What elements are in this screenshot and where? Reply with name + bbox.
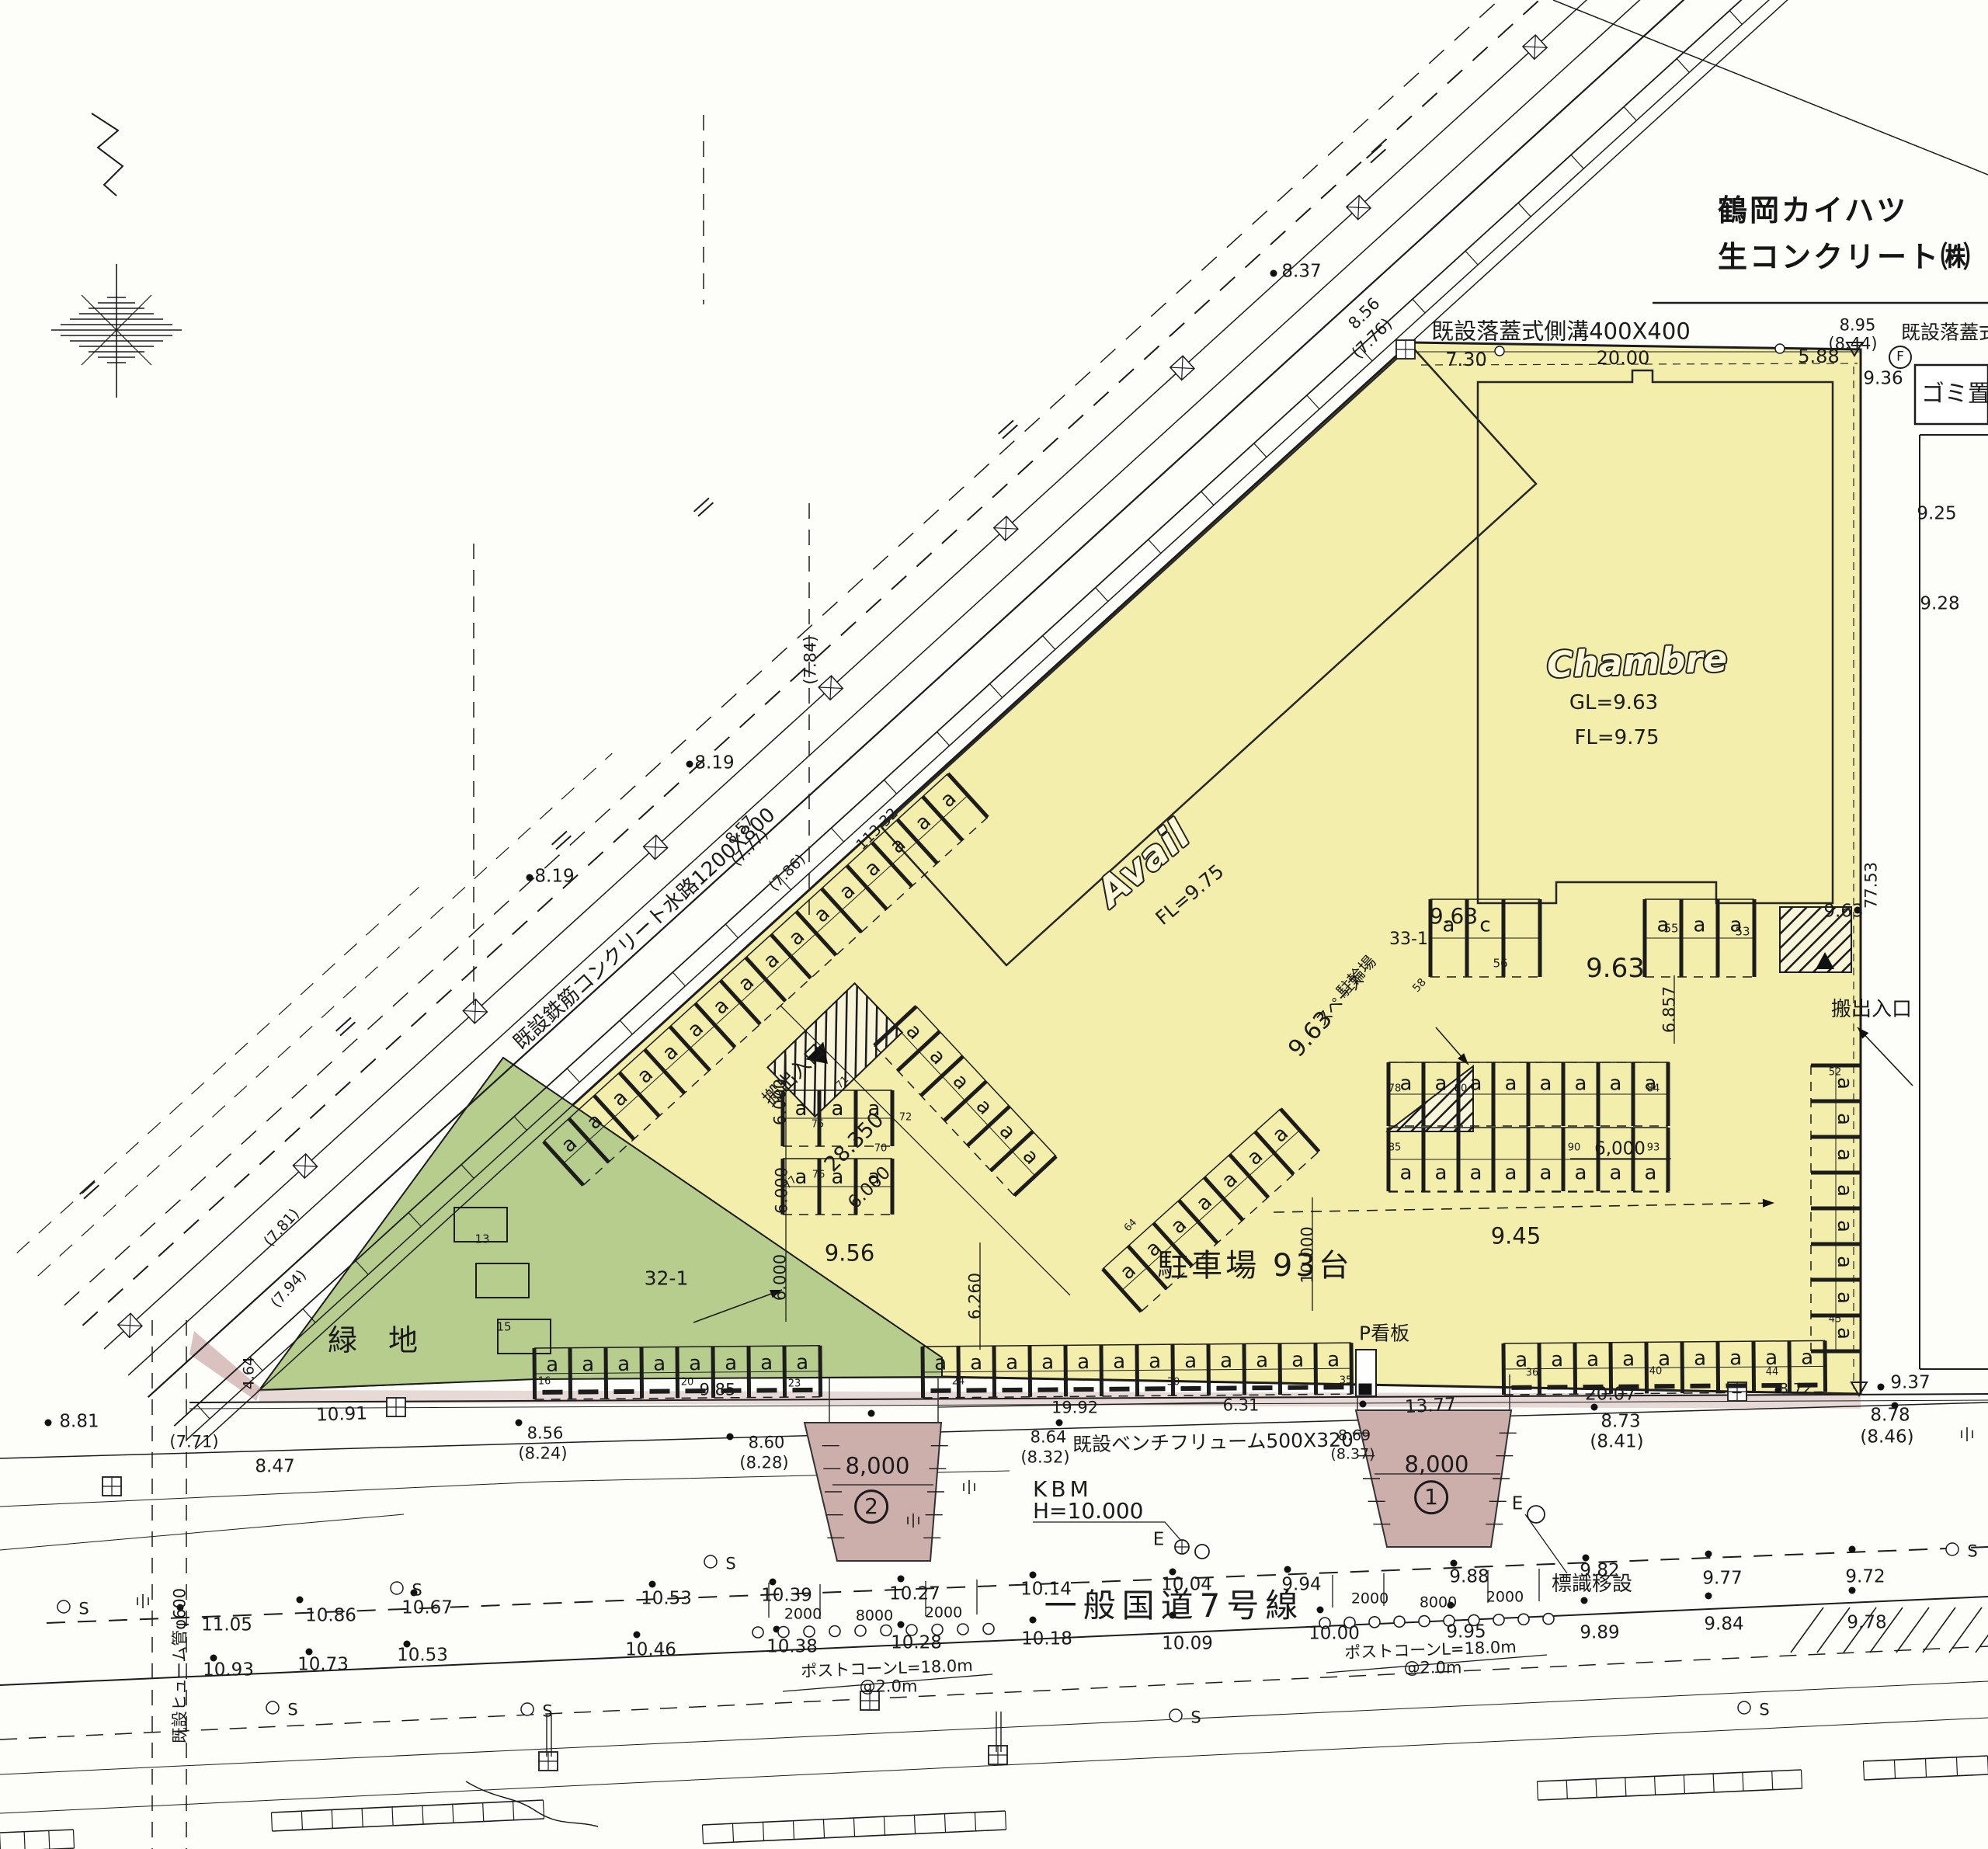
plan-shape: a [970, 1351, 982, 1375]
plan-shape [792, 1388, 812, 1392]
plan-shape [958, 1347, 959, 1398]
s-marker-circle [1170, 1709, 1182, 1722]
post-cone [855, 1625, 866, 1636]
plan-shape: a [1833, 1291, 1856, 1304]
plan-shape: a [1833, 1077, 1856, 1090]
survey-dot [527, 874, 533, 881]
plan-shape: a [1505, 1162, 1517, 1185]
plan-shape: a [582, 1353, 594, 1376]
kbm-point [1175, 1540, 1189, 1554]
plan-shape [823, 1819, 824, 1838]
plan-shape [694, 498, 709, 511]
plan-shape [1030, 1346, 1030, 1397]
plan-shape [1307, 395, 1319, 409]
plan-shape: a [1435, 1072, 1448, 1095]
plan-shape: a [1645, 1162, 1657, 1185]
survey-dot [686, 761, 693, 768]
plan-shape: a [1622, 1347, 1635, 1371]
plan-shape [1825, 1340, 1826, 1392]
plus-box-marker [103, 1477, 121, 1496]
survey-dot [45, 1420, 52, 1427]
e-marker-circle [1195, 1545, 1209, 1559]
tick-triplet [1962, 1427, 1972, 1441]
survey-dot [1705, 1593, 1712, 1600]
plan-shape [641, 1347, 642, 1399]
parking-row: aaaaaaaaa [1503, 1340, 1826, 1395]
plan-shape [944, 1814, 945, 1833]
plan-shape [999, 420, 1013, 433]
survey-dot [177, 1604, 184, 1611]
tick-triplet [137, 1594, 148, 1608]
post-cone [1394, 1616, 1405, 1627]
plan-shape [1537, 1781, 1538, 1800]
post-cone [983, 1624, 994, 1635]
plan-shape [1761, 1383, 1781, 1388]
plan-shape [271, 1800, 543, 1813]
plan-shape: a [1645, 1072, 1657, 1095]
survey-dot [1170, 1612, 1176, 1619]
plan-shape [1323, 1385, 1343, 1389]
plus-box-marker [860, 1691, 879, 1710]
e-marker-circle [1527, 1506, 1545, 1523]
plan-shape [1625, 1778, 1626, 1796]
post-cone [1319, 1618, 1330, 1628]
post-cone [906, 1625, 917, 1635]
survey-dot [868, 1410, 875, 1417]
culvert [1538, 1788, 1802, 1800]
plan-shape [271, 1813, 272, 1831]
plan-shape [84, 1185, 99, 1198]
plan-shape: a [1443, 914, 1455, 937]
plan-shape: c [1479, 914, 1490, 937]
plan-shape [0, 1830, 73, 1833]
plan-shape [1252, 1385, 1272, 1390]
plan-shape [197, 1405, 210, 1419]
survey-dot [1878, 1384, 1885, 1391]
survey-dot [1030, 1617, 1037, 1624]
plan-shape [567, 1069, 579, 1083]
post-cone [804, 1626, 815, 1637]
plan-shape: a [1515, 1349, 1527, 1372]
post-cone [1518, 1614, 1529, 1625]
plan-shape [1511, 1385, 1531, 1390]
p-signboard [1356, 1350, 1376, 1396]
survey-dot [1705, 1551, 1712, 1558]
plan-shape [453, 1804, 454, 1823]
plan-shape [756, 1388, 777, 1392]
survey-dot [727, 1434, 734, 1441]
plan-shape [831, 828, 843, 842]
post-cone [1493, 1614, 1504, 1625]
survey-dot [1892, 1402, 1899, 1409]
plan-shape [1677, 59, 1689, 73]
plan-shape [1216, 1385, 1236, 1390]
plan-shape [725, 924, 738, 938]
plan-shape [1208, 1344, 1209, 1395]
plan-shape: a [1540, 1072, 1552, 1095]
plan-shape [1618, 1384, 1639, 1388]
plan-shape [1729, 11, 1742, 25]
plan-shape: a [1833, 1256, 1856, 1268]
post-cone [958, 1624, 968, 1635]
plan-shape [793, 1821, 794, 1840]
survey-dot [1849, 1587, 1856, 1594]
s-marker-circle [1946, 1543, 1958, 1555]
plan-shape: a [1184, 1350, 1197, 1373]
plan-shape [820, 1346, 821, 1397]
plan-shape [1726, 1383, 1746, 1388]
plan-shape [1801, 1770, 1802, 1788]
plan-shape [1002, 1388, 1022, 1392]
s-marker-circle [391, 1582, 403, 1594]
plan-shape [990, 684, 1003, 698]
plan-shape [1624, 106, 1636, 120]
plan-shape [1003, 425, 1017, 438]
plan-shape [853, 1818, 854, 1837]
plan-shape [1201, 492, 1214, 506]
plan-shape [1173, 1344, 1173, 1395]
hatch-slash [1870, 1607, 1903, 1653]
survey-dot [306, 1649, 313, 1656]
plan-shape: a [1470, 1162, 1482, 1185]
post-cone [1468, 1614, 1479, 1625]
break-mark [1367, 144, 1386, 162]
plan-shape [1772, 1771, 1773, 1790]
break-mark [552, 831, 572, 849]
survey-dot [1360, 1401, 1367, 1408]
plan-shape: a [1575, 1072, 1587, 1095]
hatch-slash [1949, 1607, 1982, 1653]
plan-shape: a [1833, 1113, 1856, 1125]
plan-shape [1180, 1386, 1201, 1391]
plan-shape [483, 1803, 484, 1822]
plan-shape: a [934, 1352, 947, 1375]
plan-shape: a [1470, 1072, 1482, 1095]
plan-shape [914, 1815, 915, 1833]
plan-shape [362, 1809, 363, 1827]
plan-shape [923, 1347, 923, 1398]
plan-shape [578, 1389, 598, 1394]
plan-shape: a [796, 1351, 808, 1375]
plan-shape [1367, 144, 1382, 158]
post-cone [1369, 1617, 1380, 1628]
survey-dot [1317, 1607, 1324, 1614]
hatch-slash [1791, 1607, 1823, 1653]
plan-shape: a [868, 1097, 881, 1121]
plan-shape [1360, 347, 1372, 361]
break-mark [999, 420, 1018, 438]
benchmark-star [51, 264, 182, 398]
plan-shape: a [1658, 1347, 1670, 1371]
plan-shape [613, 1389, 634, 1394]
plan-shape [1537, 1770, 1801, 1781]
plan-shape: a [653, 1352, 666, 1375]
survey-dot [898, 1576, 905, 1583]
plan-shape [340, 1022, 355, 1035]
plan-shape [1413, 299, 1425, 313]
site-plan-drawing: aaaaaaaaaaaaaaaaaaaaaaaaaaaaaaaaaaaaaaaa… [0, 0, 1988, 1849]
plan-shape [975, 1813, 975, 1831]
site-area [189, 342, 1861, 1409]
break-mark [336, 1017, 356, 1035]
plan-shape: a [1041, 1350, 1054, 1374]
plan-shape: a [795, 1097, 808, 1121]
plan-shape: a [1400, 1072, 1413, 1095]
plan-shape [332, 1809, 332, 1828]
plan-shape: a [546, 1354, 558, 1377]
plan-shape [698, 502, 713, 516]
hatch-slash [1923, 1607, 1955, 1653]
plan-shape [713, 1347, 714, 1398]
post-cone [1543, 1614, 1554, 1625]
plan-shape: a [1540, 1162, 1552, 1185]
plan-shape [763, 1822, 763, 1840]
plus-box-marker [1396, 340, 1415, 359]
plan-shape: a [1610, 1162, 1622, 1185]
plan-shape [732, 1823, 733, 1842]
plan-shape: a [760, 1351, 773, 1375]
plan-shape [1145, 1386, 1165, 1391]
plan-shape [1244, 1343, 1245, 1395]
plan-shape [1655, 1776, 1656, 1795]
plan-shape [930, 1388, 951, 1393]
survey-dot [297, 1597, 304, 1604]
survey-dot [516, 1420, 523, 1427]
s-marker-circle [521, 1703, 533, 1715]
plan-shape [392, 1807, 393, 1826]
survey-dot [1056, 1420, 1063, 1427]
break-mark [80, 1180, 99, 1198]
survey-dot [1284, 1566, 1291, 1573]
plan-shape: a [1575, 1162, 1587, 1185]
plan-shape [884, 1816, 885, 1835]
survey-dot [1448, 1602, 1455, 1609]
plan-shape: a [1505, 1072, 1517, 1095]
plan-shape [336, 1017, 351, 1031]
plan-shape [1315, 1343, 1316, 1395]
post-cone [778, 1627, 789, 1638]
plan-shape [1690, 1384, 1710, 1388]
plan-shape: a [1657, 914, 1670, 937]
survey-dot [1583, 1555, 1590, 1562]
post-cone [881, 1625, 891, 1636]
plan-shape [1956, 1757, 1957, 1776]
plan-shape: a [832, 1097, 844, 1121]
garbage-area-box [1915, 365, 1988, 424]
hatch-slash [1896, 1607, 1929, 1653]
plan-shape [1894, 1760, 1895, 1778]
plan-shape [1713, 1774, 1714, 1792]
hatch-slash [1844, 1607, 1876, 1653]
plan-shape: a [1833, 1327, 1856, 1340]
survey-dot [634, 1632, 641, 1639]
s-marker-circle [57, 1600, 70, 1613]
plan-shape: a [689, 1352, 701, 1375]
plan-shape [994, 1346, 995, 1397]
plus-box-marker [539, 1752, 558, 1771]
plan-shape [1583, 1385, 1603, 1389]
plan-shape [1718, 1342, 1719, 1393]
arrow-line [1858, 1027, 1913, 1086]
plan-shape [749, 1347, 749, 1398]
plan-shape [1611, 1343, 1611, 1394]
plan-shape [250, 1357, 262, 1371]
plan-shape [1096, 588, 1108, 602]
plan-shape [301, 1811, 302, 1830]
plan-shape [1149, 540, 1161, 554]
plan-shape [1465, 251, 1478, 265]
plan-shape: a [1220, 1349, 1232, 1372]
plan-shape [24, 1832, 25, 1849]
break-mark [694, 498, 714, 516]
plan-shape: a [1551, 1348, 1563, 1371]
s-marker-circle [266, 1701, 279, 1714]
plan-shape [620, 1020, 632, 1034]
plan-shape [1925, 1759, 1926, 1778]
plan-shape: a [1327, 1348, 1340, 1371]
post-cone [932, 1625, 943, 1635]
plan-shape: a [1149, 1350, 1161, 1373]
plan-shape: a [1833, 1220, 1856, 1232]
plan-shape [49, 1830, 50, 1849]
post-cone [1419, 1616, 1430, 1627]
plan-shape: a [868, 1166, 881, 1189]
plan-shape [422, 1806, 423, 1824]
plan-shape [1037, 1387, 1058, 1392]
plan-shape [552, 831, 567, 844]
survey-dot [1849, 1546, 1856, 1553]
plan-shape [1863, 1761, 1864, 1780]
plan-shape: a [617, 1353, 630, 1376]
tick-triplet [964, 1480, 975, 1494]
plan-shape: a [1400, 1162, 1413, 1185]
survey-dot [649, 1581, 656, 1588]
plan-shape: a [725, 1352, 737, 1375]
plan-shape: a [1435, 1162, 1448, 1185]
plan-shape [1005, 1811, 1006, 1830]
plan-shape: a [1694, 1347, 1706, 1371]
plan-shape: a [1587, 1348, 1599, 1371]
plan-shape [1254, 443, 1267, 457]
plan-shape: a [1291, 1349, 1304, 1372]
plan-shape [1646, 1342, 1647, 1393]
plan-shape [556, 836, 571, 849]
plan-shape [778, 876, 791, 890]
plan-shape [1797, 1382, 1817, 1387]
survey-dot [411, 1590, 418, 1597]
survey-dot [770, 1579, 777, 1586]
plan-shape [1743, 1772, 1743, 1791]
plan-shape [1518, 203, 1531, 217]
plan-shape [1596, 1779, 1597, 1798]
plan-shape [1684, 1775, 1684, 1794]
plan-shape [1073, 1387, 1093, 1392]
plan-shape [673, 972, 685, 986]
flag-symbol [92, 113, 123, 196]
plan-shape [1575, 1343, 1576, 1394]
plan-shape: a [1694, 914, 1706, 937]
plan-shape [80, 1180, 95, 1194]
plan-shape [966, 1388, 986, 1392]
plan-shape [73, 1830, 74, 1848]
survey-dot [898, 1621, 905, 1628]
plan-shape [1065, 1345, 1066, 1396]
survey-dot [404, 1641, 411, 1648]
plan-shape [884, 780, 896, 794]
plan-shape: a [1610, 1072, 1622, 1095]
s-marker-circle [1738, 1701, 1750, 1714]
survey-dot [1591, 1404, 1598, 1411]
plan-shape [1753, 1341, 1754, 1392]
plan-shape [1789, 1341, 1790, 1392]
plan-shape [534, 1348, 535, 1399]
plan-shape [1280, 1343, 1281, 1395]
plan-shape: a [1256, 1349, 1268, 1372]
survey-dot [1854, 907, 1861, 914]
plan-shape: a [1833, 1149, 1856, 1161]
plan-shape [702, 1825, 703, 1844]
culvert [273, 1819, 544, 1831]
plan-shape [0, 1833, 1, 1849]
plan-shape [1682, 1342, 1683, 1393]
plan-shape [1101, 1345, 1102, 1396]
plan-shape: a [1113, 1350, 1125, 1374]
plan-shape [937, 732, 950, 746]
survey-dot [1451, 1560, 1458, 1567]
plan-shape: a [795, 1166, 808, 1189]
plan-shape: a [1765, 1347, 1778, 1370]
plan-shape [1288, 1385, 1308, 1390]
plan-shape: a [1729, 1347, 1742, 1370]
post-cone [829, 1626, 840, 1637]
plan-linework: aaaaaaaaaaaaaaaaaaaaaaaaaaaaaaaaaaaaaaaa… [0, 0, 1988, 1849]
plan-shape [677, 1347, 678, 1398]
plan-shape [784, 1346, 785, 1397]
survey-dot [1170, 1569, 1176, 1576]
survey-dot [1581, 1597, 1588, 1604]
plan-shape [1539, 1343, 1540, 1395]
s-marker-circle [704, 1555, 717, 1568]
plan-shape: a [1833, 1184, 1856, 1197]
survey-dot [1030, 1572, 1037, 1579]
hatch-slash [1817, 1607, 1850, 1653]
plan-shape: a [1730, 914, 1743, 937]
plus-box-marker [387, 1398, 405, 1416]
plan-shape [721, 1388, 741, 1393]
plan-shape: a [1077, 1350, 1090, 1374]
plan-shape [606, 1347, 606, 1399]
plan-shape [1109, 1387, 1129, 1392]
plan-shape: a [832, 1166, 844, 1189]
plan-shape [570, 1348, 571, 1399]
plan-shape [1654, 1384, 1674, 1388]
survey-dot [1270, 270, 1277, 277]
plan-shape [513, 1802, 514, 1820]
post-cone [752, 1627, 763, 1638]
plan-shape [1547, 1385, 1567, 1389]
post-cone [1344, 1617, 1355, 1628]
plus-box-marker [989, 1746, 1007, 1764]
plan-shape [685, 1388, 705, 1393]
post-cone [1444, 1615, 1455, 1626]
plan-shape [542, 1390, 562, 1395]
plan-shape [649, 1388, 669, 1393]
plan-shape [1571, 155, 1583, 169]
survey-dot [210, 1655, 217, 1662]
plan-shape [1566, 1780, 1567, 1799]
plan-shape [1137, 1345, 1138, 1396]
plan-shape [1043, 636, 1055, 650]
